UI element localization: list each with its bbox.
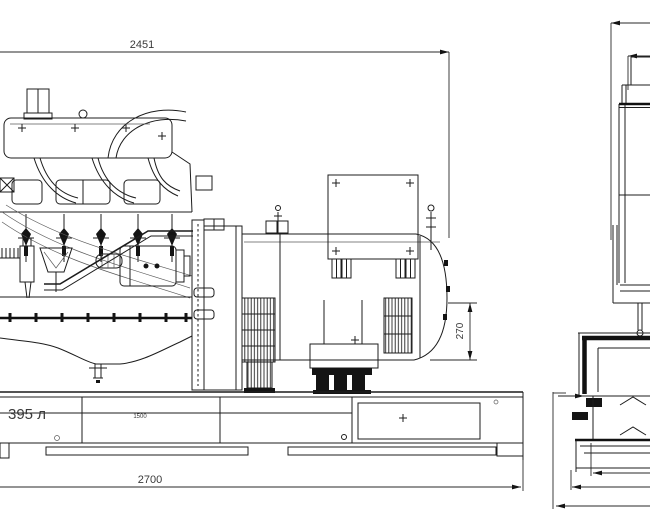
end-view-top-dimensions — [611, 21, 650, 240]
cover-bolts — [18, 124, 166, 140]
intake-elbow — [108, 110, 186, 158]
alternator: 270 — [194, 175, 477, 394]
arrowhead-left — [556, 504, 565, 509]
breather-pipe — [274, 206, 282, 235]
arrowhead-right — [440, 50, 449, 55]
front-cooling-grille — [242, 298, 275, 362]
oil-sump — [0, 336, 192, 383]
corner-marks — [332, 179, 414, 255]
injector — [164, 214, 180, 262]
crankcase-rail — [0, 297, 192, 322]
fuel-filter-funnel — [40, 248, 72, 292]
arrowhead-down — [468, 351, 473, 360]
arrowhead-right — [512, 485, 521, 490]
rocker-cover — [4, 110, 172, 158]
base-frame-fuel-tank: 395 л 1500 2700 — [0, 392, 523, 491]
head-right-edge — [172, 152, 192, 212]
fitting-comb — [0, 248, 20, 258]
dimension-overall-length: 2451 — [0, 39, 449, 238]
fuel-capacity-label: 395 л — [8, 406, 46, 423]
rear-mounting-foot — [310, 300, 378, 368]
isolator-block — [572, 412, 588, 420]
end-view-bottom-dimensions — [553, 392, 650, 509]
end-view — [553, 21, 650, 509]
rear-bracket — [196, 176, 212, 190]
skid-runners — [0, 443, 523, 458]
dimension-base-length: 2700 — [0, 460, 523, 491]
drain-plug — [89, 364, 107, 383]
exhaust-manifold — [12, 158, 180, 204]
arrowhead-left — [628, 54, 637, 59]
front-mounting-foot — [244, 362, 275, 393]
arrowhead-left — [593, 471, 602, 476]
inspection-panel — [358, 403, 480, 439]
end-view-base — [558, 394, 650, 472]
genset-ga-drawing: 2451 — [0, 0, 650, 515]
lifting-eye — [426, 205, 436, 250]
rear-cooling-grille — [384, 298, 412, 353]
injector — [130, 214, 146, 262]
technical-drawing-canvas: 2451 — [0, 0, 650, 515]
tank-panel-label: 1500 — [133, 414, 147, 420]
injector — [93, 214, 109, 262]
end-view-canopy-frame — [578, 333, 650, 396]
arrowhead-left — [611, 21, 620, 26]
drain-port — [342, 435, 347, 440]
engine — [0, 89, 212, 390]
brace-chevron — [620, 427, 646, 435]
side-view: 2451 — [0, 39, 523, 491]
dim-label-2700: 2700 — [138, 474, 162, 486]
arrowhead-up — [468, 303, 473, 312]
end-view-body — [613, 57, 650, 336]
exhaust-stack — [24, 89, 52, 119]
bolt-hole — [55, 436, 60, 441]
flywheel-housing — [192, 220, 204, 390]
vibration-isolators — [312, 368, 372, 394]
isolator-block — [586, 398, 602, 407]
brace-chevron — [620, 397, 646, 405]
starter-motor — [120, 246, 190, 286]
terminal-box-feet — [332, 259, 415, 278]
bolt-hole — [494, 400, 498, 404]
dim-label-2451: 2451 — [130, 39, 154, 51]
dimension-rear-height: 270 — [430, 303, 477, 360]
dim-label-270: 270 — [455, 322, 466, 339]
filler-mark — [399, 414, 407, 422]
arrowhead-left — [572, 485, 581, 490]
filler-cap — [79, 110, 87, 118]
terminal-box — [328, 175, 418, 278]
